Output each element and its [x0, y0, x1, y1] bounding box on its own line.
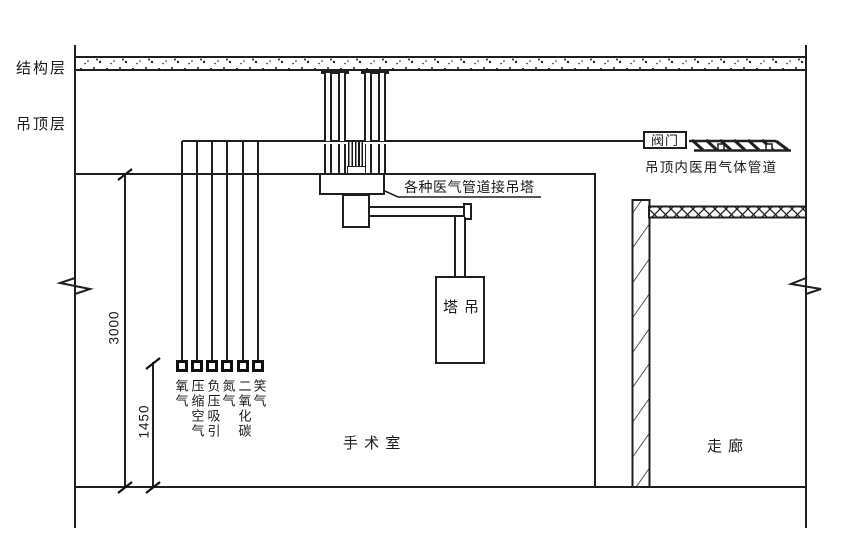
dimension-value-3000: 3000	[107, 306, 122, 350]
gas-outlet	[176, 360, 188, 372]
pendant-ceiling-plate	[319, 173, 385, 195]
valve-box: 阀门	[643, 131, 687, 149]
break-symbol-left	[60, 268, 90, 304]
pendant-connection-note: 各种医气管道接吊塔	[404, 177, 535, 197]
gas-outlet	[252, 360, 264, 372]
pendant-hub	[342, 194, 370, 228]
operating-room-label: 手 术 室	[343, 432, 401, 453]
gas-label-carbon-dioxide: 二氧化碳	[237, 379, 252, 439]
corridor-ceiling	[649, 207, 806, 218]
gas-label-oxygen: 氧气	[174, 379, 189, 409]
medical-gas-section-drawing: 吊塔 氧气 压缩空气 负压吸引 氮气 二氧化碳 笑气 阀门 结构层 吊顶层 各种…	[0, 0, 845, 552]
gas-label-nitrogen: 氮气	[221, 379, 236, 409]
pendant-label: 吊塔	[439, 299, 481, 341]
pendant-column	[454, 217, 466, 277]
gas-outlet	[206, 360, 218, 372]
ceiling-layer-label: 吊顶层	[16, 113, 67, 134]
gas-outlet	[237, 360, 249, 372]
gas-label-compressed-air: 压缩空气	[190, 379, 205, 439]
structural-slab	[75, 59, 806, 70]
corridor-label: 走 廊	[707, 435, 744, 456]
structural-layer-label: 结构层	[16, 57, 67, 78]
gas-label-vacuum-suction: 负压吸引	[206, 379, 221, 439]
pendant-box: 吊塔	[435, 276, 485, 364]
gas-label-nitrous-oxide: 笑气	[252, 379, 267, 409]
pendant-arm	[368, 206, 467, 217]
break-symbol-right	[791, 268, 821, 304]
gas-outlet	[221, 360, 233, 372]
dimension-ticks	[118, 169, 160, 493]
corridor-wall	[633, 200, 650, 487]
gas-outlet	[191, 360, 203, 372]
dimension-value-1450: 1450	[137, 400, 152, 444]
drawing-annotations	[0, 0, 845, 552]
ceiling-gas-pipeline-note: 吊顶内医用气体管道	[645, 156, 777, 176]
ceiling-pipe-symbol	[689, 140, 791, 151]
valve-label: 阀门	[651, 130, 679, 149]
